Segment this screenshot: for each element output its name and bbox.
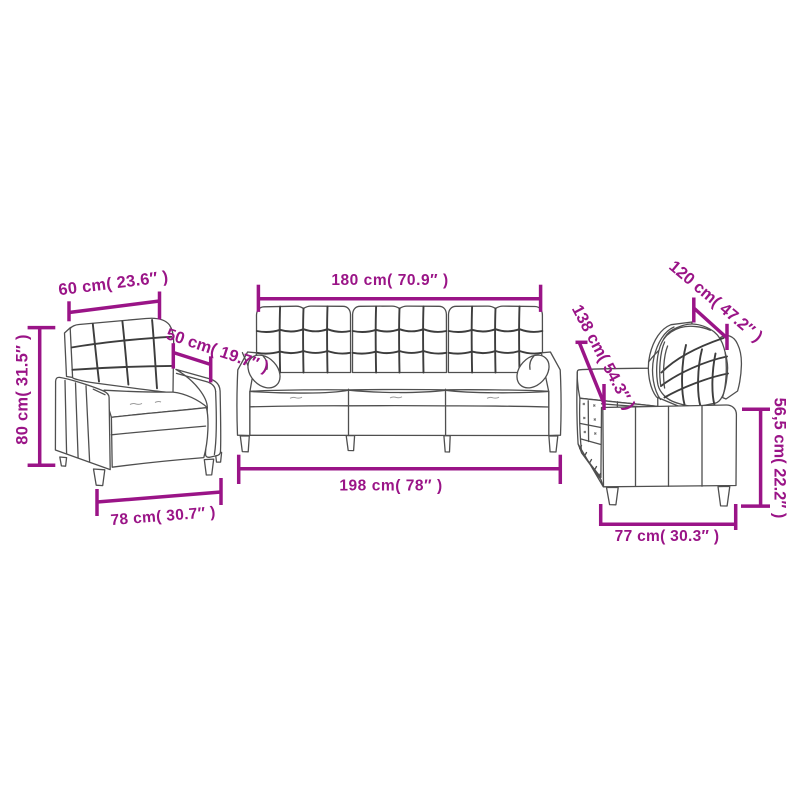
svg-text:77 cm( 30.3″ ): 77 cm( 30.3″ ): [615, 528, 720, 545]
svg-text:56,5 cm( 22.2″ ): 56,5 cm( 22.2″ ): [771, 398, 789, 519]
svg-text:80 cm( 31.5″ ): 80 cm( 31.5″ ): [14, 334, 32, 444]
svg-text:180 cm( 70.9″ ): 180 cm( 70.9″ ): [331, 272, 448, 289]
svg-text:198 cm( 78″ ): 198 cm( 78″ ): [339, 478, 442, 495]
